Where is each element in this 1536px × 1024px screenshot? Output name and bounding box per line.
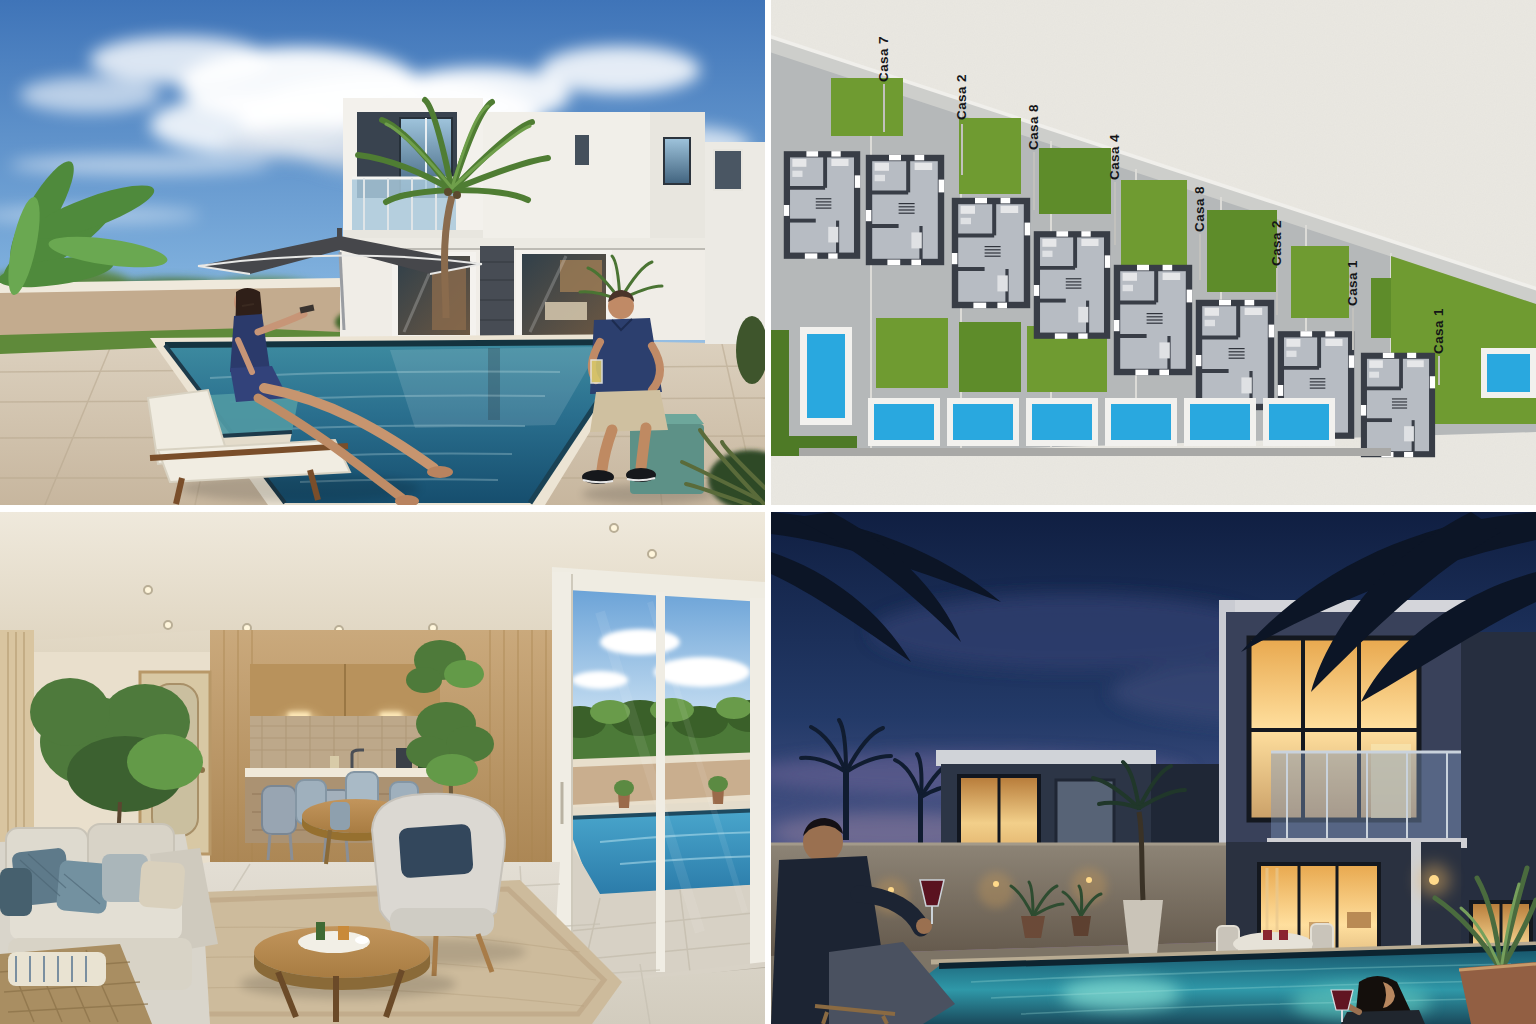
interior-scene [0, 512, 765, 1024]
site-plan-label: Casa 8 [1025, 92, 1043, 150]
site-plan-label: Casa 2 [1268, 208, 1286, 266]
countertop [245, 768, 443, 777]
balcony [1267, 752, 1467, 848]
panel-site-plan: Casa 7 Casa 2 Casa 8 Casa 4 Casa 8 Casa … [771, 0, 1536, 505]
walkway [799, 448, 1391, 456]
door-mullion [656, 592, 665, 972]
site-plan-label: Casa 1 [1344, 248, 1362, 306]
panel-exterior-night [771, 512, 1536, 1024]
pool-marker [1026, 398, 1098, 446]
pool-marker [947, 398, 1019, 446]
exterior-night-scene [771, 512, 1536, 1024]
sliding-glass-wall [552, 567, 765, 1006]
pool-marker [1184, 398, 1256, 446]
pool-marker [1263, 398, 1335, 446]
site-plan-label: Casa 4 [1106, 122, 1124, 180]
drink-glass [591, 360, 602, 383]
armchair-pillow [398, 824, 473, 879]
stone-pillar [480, 246, 514, 340]
tall-white-planter [1123, 900, 1163, 954]
pool-marker [1105, 398, 1177, 446]
pool-marker [1481, 348, 1536, 398]
pool-marker [868, 398, 940, 446]
photo-collage: Casa 7 Casa 2 Casa 8 Casa 4 Casa 8 Casa … [0, 0, 1536, 1024]
site-plan-label: Casa 2 [953, 62, 971, 120]
panel-interior [0, 512, 765, 1024]
site-plan-label: Casa 7 [875, 24, 893, 82]
door-post-right [750, 598, 765, 968]
panel-exterior-day [0, 0, 765, 505]
man-shorts [590, 390, 668, 432]
pool-marker [800, 327, 852, 425]
site-plan-label: Casa 1 [1430, 296, 1448, 354]
wall-sconce [1429, 875, 1439, 885]
exterior-day-scene [0, 0, 765, 505]
site-plan-label: Casa 8 [1191, 174, 1209, 232]
